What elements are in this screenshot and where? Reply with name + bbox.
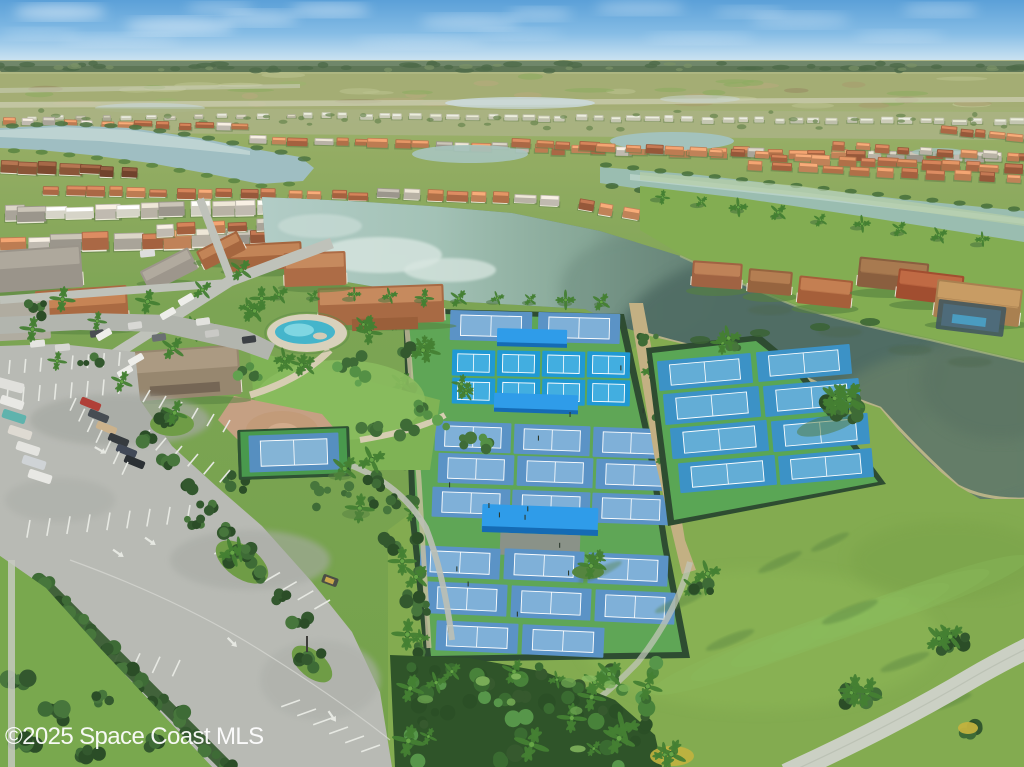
svg-text:©2025 Space Coast MLS: ©2025 Space Coast MLS	[5, 723, 264, 750]
